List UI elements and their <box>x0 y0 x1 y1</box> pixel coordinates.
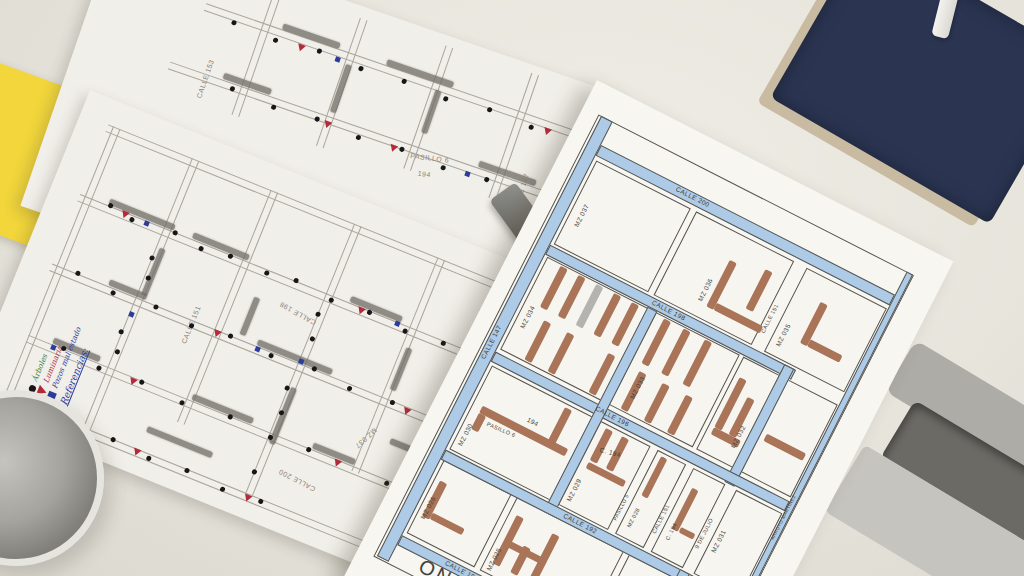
street-label-calle-200-pencil: CALLE 200 <box>277 468 316 493</box>
survey-triangle <box>542 127 552 136</box>
survey-dot <box>272 37 278 43</box>
survey-dot <box>399 146 405 152</box>
street-label-194-pencil: 194 <box>417 170 431 179</box>
pencil-street-line <box>177 190 278 425</box>
survey-dot <box>231 20 237 26</box>
survey-square <box>464 171 470 177</box>
survey-dot <box>484 176 490 182</box>
survey-triangle <box>296 43 306 52</box>
pencil-stroke <box>240 297 261 336</box>
pencil-stroke <box>146 426 213 458</box>
survey-dot <box>358 65 364 71</box>
survey-dot <box>270 104 276 110</box>
survey-dot <box>443 96 449 102</box>
survey-dot <box>440 165 446 171</box>
survey-triangle <box>388 144 398 153</box>
survey-dot <box>401 78 407 84</box>
street-label-calle-198-pencil: CALLE 198 <box>278 301 317 327</box>
survey-square <box>335 56 341 62</box>
survey-dot <box>355 134 361 140</box>
survey-dot <box>528 124 534 130</box>
survey-dot <box>486 107 492 113</box>
desk-photo: CALLE 153 CALLE 147 MZ 030 PASILLO 6 194… <box>0 0 1024 576</box>
survey-dot <box>316 48 322 54</box>
tin-engraved-lid <box>0 409 53 513</box>
street-label-pasillo-6-pencil: PASILLO 6 <box>410 152 450 164</box>
